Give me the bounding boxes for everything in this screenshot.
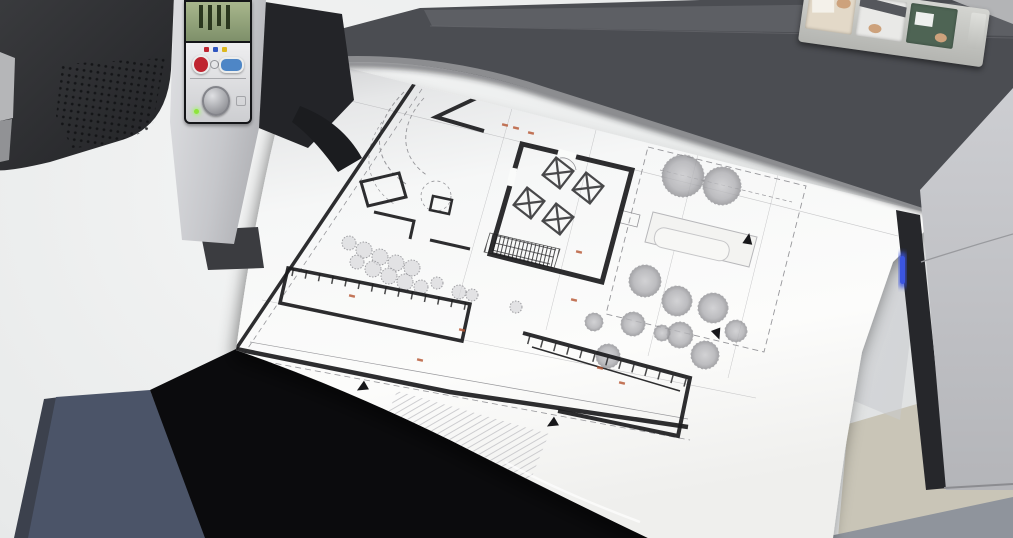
button-row <box>192 55 244 74</box>
ink-level-bar <box>208 5 212 30</box>
tree <box>667 322 693 348</box>
ink-color-dot <box>213 47 218 52</box>
plotter-photo-scene <box>0 0 1013 538</box>
tree <box>654 325 670 341</box>
tree <box>698 293 728 323</box>
shrub <box>510 301 522 313</box>
shrub <box>350 255 364 269</box>
power-icon <box>210 60 219 69</box>
ok-button[interactable] <box>219 57 244 73</box>
tree <box>662 286 692 316</box>
shrub <box>381 268 397 284</box>
card-illustration <box>855 0 907 42</box>
reference-card <box>805 0 857 35</box>
tree <box>703 167 741 205</box>
ink-color-dots <box>204 47 246 52</box>
ink-color-dot <box>222 47 227 52</box>
shrub <box>431 277 443 289</box>
shrub <box>404 260 420 276</box>
shrub <box>397 274 413 290</box>
reference-card <box>906 3 958 49</box>
shrub <box>342 236 356 250</box>
shrub <box>452 285 466 299</box>
tree <box>621 312 645 336</box>
ink-color-dot <box>204 47 209 52</box>
vent-grid <box>56 58 165 148</box>
power-led <box>194 109 199 114</box>
tree <box>629 265 661 297</box>
card-illustration <box>805 0 857 35</box>
reference-card <box>855 0 907 42</box>
ink-level-display <box>186 2 250 41</box>
cancel-button[interactable] <box>192 55 210 74</box>
feed-row <box>190 81 246 120</box>
tree <box>691 341 719 369</box>
feed-icon <box>236 96 246 106</box>
feed-button[interactable] <box>202 86 230 116</box>
panel-divider <box>190 78 246 79</box>
control-panel <box>184 0 252 124</box>
key-area <box>186 43 250 122</box>
shrub <box>365 261 381 277</box>
ink-level-bar <box>226 5 230 29</box>
tree <box>662 155 704 197</box>
ink-level-bar <box>217 5 221 26</box>
shrub <box>466 289 478 301</box>
tree <box>585 313 603 331</box>
device-side-panel <box>0 52 15 121</box>
scene-canvas <box>0 0 1013 538</box>
tree <box>725 320 747 342</box>
ink-level-bar <box>199 5 203 28</box>
status-led <box>900 256 905 284</box>
card-illustration <box>906 3 958 49</box>
